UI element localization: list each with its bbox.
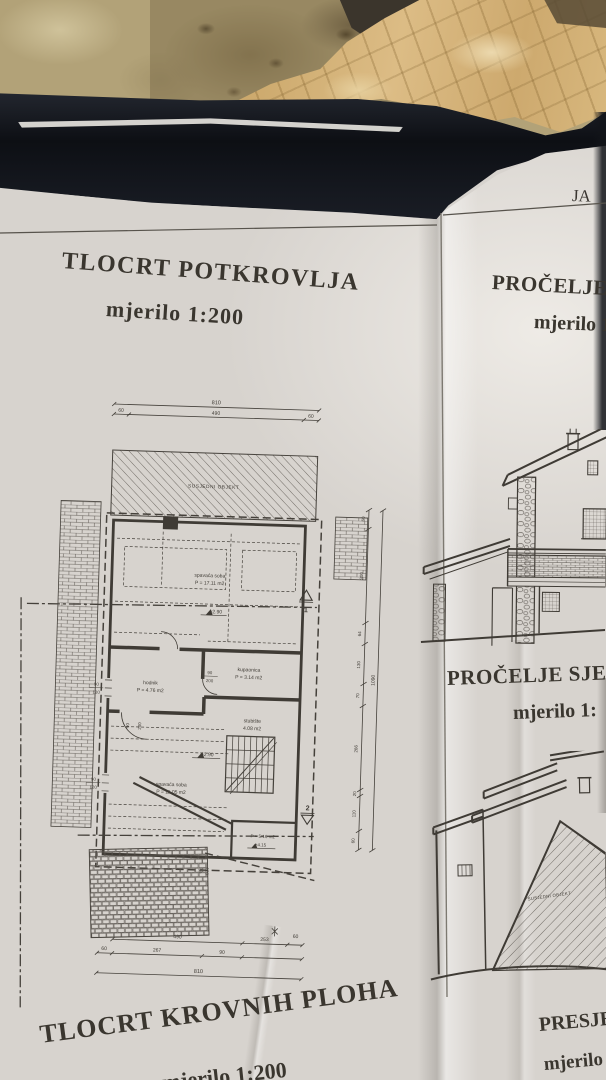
svg-text:200: 200: [137, 722, 142, 730]
chimney: [566, 427, 580, 450]
bedroom2-area: P = 11.05 m2: [156, 789, 186, 796]
svg-text:120: 120: [92, 689, 100, 694]
dim-label: 490: [212, 411, 221, 417]
room-labels: spavaća soba P = 17.11 m2 +2.90 hodnik P…: [132, 571, 284, 848]
dim-label: 60: [293, 934, 299, 940]
left-building: [433, 810, 486, 975]
dim-label: 60: [308, 414, 314, 420]
pillar-bracket: [508, 498, 517, 509]
outer-walls: [103, 515, 306, 860]
bedroom1-name: spavaća soba: [194, 573, 225, 580]
svg-text:1090: 1090: [370, 674, 376, 686]
pergola-beam: [430, 551, 508, 580]
svg-text:70: 70: [355, 693, 360, 699]
north-elevation: SUSJEDNI OBJEKT: [423, 750, 606, 988]
window: [542, 592, 559, 611]
svg-text:266: 266: [353, 744, 358, 752]
dim-label: 60: [101, 946, 107, 952]
svg-text:90: 90: [91, 776, 97, 781]
svg-text:90: 90: [207, 670, 213, 675]
balcony: [508, 549, 606, 587]
window: [583, 509, 606, 539]
plant-symbol: [272, 926, 278, 936]
svg-text:300: 300: [359, 572, 364, 580]
bedroom1-area: P = 17.11 m2: [195, 580, 225, 587]
svg-text:60: 60: [361, 516, 366, 522]
bedroom2-name: spavaća soba: [156, 782, 187, 789]
dim-label: 267: [153, 948, 162, 954]
section-marker-1: 1: [299, 590, 314, 614]
dim-label: 60: [118, 408, 124, 414]
stairs-grid: [225, 736, 277, 796]
stairs-name: stubište: [244, 718, 262, 725]
facade-south-scale: mjerilo 1: [533, 311, 606, 337]
svg-text:90: 90: [125, 723, 130, 729]
svg-text:120: 120: [89, 784, 97, 789]
chimney: [577, 778, 591, 793]
hall-name: hodnik: [143, 680, 158, 686]
pergola-roof: [424, 538, 510, 575]
bath-name: kupaonica: [237, 667, 260, 674]
svg-text:90: 90: [94, 682, 100, 687]
dim-label: 810: [194, 969, 203, 975]
ground-line: [421, 628, 605, 644]
svg-text:60: 60: [351, 838, 356, 844]
svg-text:20: 20: [352, 791, 357, 797]
sheet-fragment-text: JA: [572, 186, 592, 207]
svg-text:110: 110: [351, 810, 356, 818]
svg-text:2: 2: [306, 805, 310, 812]
dim-label: 490: [173, 934, 182, 940]
hall-area: P = 4.76 m2: [137, 687, 164, 694]
small-window: [588, 461, 598, 475]
small-room-area: P = 5.16 m2: [250, 834, 275, 840]
stone-post: [433, 584, 446, 641]
dim-label: 810: [212, 400, 221, 406]
svg-text:1: 1: [304, 607, 308, 614]
stairs-area: 4.08 m2: [243, 726, 261, 733]
svg-text:64: 64: [357, 631, 362, 637]
boundary-dashed: [204, 853, 315, 880]
dim-label: 253: [260, 937, 269, 943]
floor-plan: 810 60 490 60 SUSJEDNI OBJEKT: [0, 377, 410, 1021]
bath-area: P = 3.14 m2: [235, 674, 262, 681]
photo-scene: TLOCRT POTKROVLJA mjerilo 1:200 PROČELJE…: [0, 0, 606, 1080]
dim-label: 90: [219, 950, 225, 956]
neighbor-roof-block: [334, 517, 368, 580]
svg-text:200: 200: [206, 678, 214, 683]
facade-north-scale: mjerilo 1:: [513, 699, 598, 725]
south-elevation: [419, 427, 606, 655]
interior-walls: [103, 630, 302, 860]
stone-terrace: [89, 847, 209, 937]
rear-roofs: [471, 750, 605, 822]
svg-text:130: 130: [356, 661, 361, 669]
